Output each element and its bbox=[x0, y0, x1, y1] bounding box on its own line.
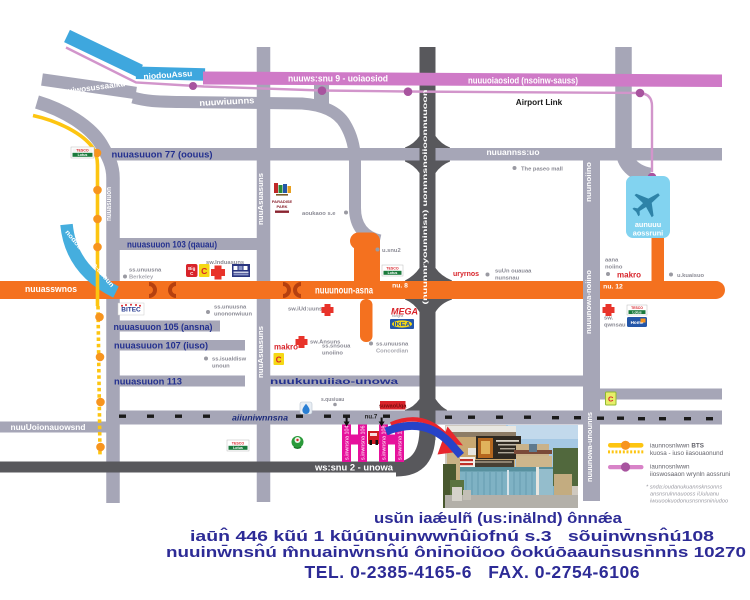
svg-text:Concordian: Concordian bbox=[376, 349, 409, 355]
svg-text:iaūn̂ 446 kũú 1 kũúūnuin: iaūn̂ 446 kũú 1 kũúūnuinwwn̄ûiofn… bbox=[190, 526, 714, 545]
svg-text:nuuasuuon 105 (ansna): nuuasuuon 105 (ansna) bbox=[114, 322, 213, 332]
svg-text:iaunnosnlwwn BTS: iaunnosnlwwn BTS bbox=[650, 443, 704, 450]
svg-text:s.inwnsna 104: s.inwnsna 104 bbox=[345, 426, 351, 460]
svg-text:nuuasuuon 113: nuuasuuon 113 bbox=[114, 376, 182, 386]
svg-text:ss.unuusna: ss.unuusna bbox=[214, 305, 247, 311]
svg-text:nuuAsuasuns: nuuAsuasuns bbox=[256, 173, 265, 225]
svg-text:nuukunuiiao-unowa: nuukunuiiao-unowa bbox=[270, 377, 399, 386]
svg-text:qwnsau: qwnsau bbox=[604, 323, 626, 329]
svg-text:aana: aana bbox=[605, 258, 619, 264]
svg-text:suUn ouauaa: suUn ouauaa bbox=[495, 269, 532, 275]
svg-text:BITEC: BITEC bbox=[121, 307, 141, 314]
svg-text:Airport Link: Airport Link bbox=[516, 98, 563, 107]
svg-text:nu. 8: nu. 8 bbox=[392, 283, 408, 290]
svg-text:C: C bbox=[608, 395, 614, 404]
svg-text:nu.7: nu.7 bbox=[365, 414, 378, 421]
svg-text:aiiuniwnnsna: aiiuniwnnsna bbox=[232, 414, 288, 423]
svg-text:nuuunoun-asna: nuuunoun-asna bbox=[315, 286, 373, 297]
svg-text:nuuunowa-unounns: nuuunowa-unounns bbox=[585, 412, 594, 482]
svg-text:nuuuoiaosiod (nsoinw-sauss): nuuuoiaosiod (nsoinw-sauss) bbox=[468, 76, 578, 86]
svg-text:nuuws:snu 9 - uoiaosiod: nuuws:snu 9 - uoiaosiod bbox=[288, 74, 388, 84]
svg-text:iwuuookuodonusnsnnsniniudoo: iwuuookuodonusnsnnsniniudoo bbox=[650, 499, 728, 505]
svg-text:ss.isualdisw: ss.isualdisw bbox=[212, 357, 247, 363]
svg-text:makro: makro bbox=[617, 271, 641, 280]
svg-text:Berkeley: Berkeley bbox=[129, 275, 154, 281]
svg-text:nuuasuuon 107 (iuso): nuuasuuon 107 (iuso) bbox=[114, 340, 208, 350]
svg-text:sw.iUd:uuns: sw.iUd:uuns bbox=[288, 307, 322, 313]
svg-text:s.inwnsna 106: s.inwnsna 106 bbox=[361, 426, 367, 460]
svg-text:nuuasuuon: nuuasuuon bbox=[104, 187, 113, 221]
svg-text:aoukaoo s.e: aoukaoo s.e bbox=[302, 211, 336, 217]
svg-text:kuosa - iuso iiasouaonund: kuosa - iuso iiasouaonund bbox=[650, 450, 724, 457]
svg-text:nu. 12: nu. 12 bbox=[603, 284, 623, 291]
svg-text:Lotus: Lotus bbox=[388, 271, 398, 275]
svg-text:ss.unuusna: ss.unuusna bbox=[376, 342, 409, 348]
svg-text:The paseo mall: The paseo mall bbox=[521, 167, 563, 173]
svg-text:nuuasuuon 103 (qauau): nuuasuuon 103 (qauau) bbox=[127, 239, 217, 249]
svg-text:Lotus: Lotus bbox=[233, 446, 243, 450]
svg-text:ss.snsouа: ss.snsouа bbox=[322, 344, 351, 350]
svg-text:nuuannss:uo: nuuannss:uo bbox=[487, 147, 540, 157]
svg-text:u.kuaisuo: u.kuaisuo bbox=[677, 273, 705, 279]
svg-text:ansnsrulnnauooss iUuluanu: ansnsrulnnauooss iUuluanu bbox=[650, 492, 719, 498]
svg-text:TESCO: TESCO bbox=[232, 442, 245, 446]
svg-text:aossruni: aossruni bbox=[633, 229, 663, 238]
svg-text:ss.unuusna: ss.unuusna bbox=[129, 268, 162, 274]
svg-text:Lotus: Lotus bbox=[632, 310, 641, 314]
svg-text:C: C bbox=[276, 356, 282, 365]
svg-text:nunsnau: nunsnau bbox=[495, 276, 520, 282]
svg-text:IKEA: IKEA bbox=[394, 322, 411, 328]
svg-text:nuuunowa-noiino: nuuunowa-noiino bbox=[584, 270, 593, 334]
svg-text:TEL. 0-2385-4165-6 FAX. 0-27: TEL. 0-2385-4165-6 FAX. 0-2754-6106 bbox=[305, 562, 640, 582]
svg-text:suwaoUqа: suwaoUqа bbox=[379, 404, 407, 410]
svg-text:ws:snu 2 - unowa: ws:snu 2 - unowa bbox=[314, 462, 394, 473]
svg-text:C: C bbox=[201, 266, 207, 276]
svg-text:TESCO: TESCO bbox=[386, 267, 399, 271]
svg-text:unononwiuun: unononwiuun bbox=[214, 312, 252, 318]
svg-text:u.snu2: u.snu2 bbox=[382, 248, 401, 254]
svg-text:bangna: bangna bbox=[392, 314, 403, 318]
svg-text:unoun: unoun bbox=[212, 364, 230, 370]
svg-text:nuunoiino: nuunoiino bbox=[584, 161, 593, 202]
svg-text:iioswosaaon wrynln aossruni: iioswosaaon wrynln aossruni bbox=[650, 471, 730, 478]
svg-text:s.qusiuau: s.qusiuau bbox=[321, 397, 344, 403]
svg-text:nuuinw̄nsn̂ú m̂nuainw̄nsn̂ú: nuuinw̄nsn̂ú m̂nuainw̄nsn̂ú ônin̄oiũ… bbox=[166, 542, 746, 561]
svg-text:TESCO: TESCO bbox=[76, 149, 89, 153]
svg-text:nuuasuuon 77 (oouus): nuuasuuon 77 (oouus) bbox=[112, 149, 213, 159]
svg-text:unoiino: unoiino bbox=[322, 351, 343, 357]
svg-text:* snda:ioudanukuannsknsonns: * snda:ioudanukuannsknsonns bbox=[646, 485, 722, 491]
svg-text:PARK: PARK bbox=[276, 204, 287, 209]
svg-text:nuuAsuasuns: nuuAsuasuns bbox=[256, 326, 265, 378]
svg-text:usŭn iaǽulñ (us:inälnd) ônnǽ: usŭn iaǽulñ (us:inälnd) ônnǽa bbox=[374, 511, 623, 527]
svg-text:iaunnosnlwwn: iaunnosnlwwn bbox=[650, 464, 690, 471]
svg-text:uryrnos: uryrnos bbox=[453, 271, 479, 278]
svg-text:Lotus: Lotus bbox=[78, 153, 88, 157]
svg-text:sw.: sw. bbox=[604, 316, 614, 322]
svg-text:nuuasswnos: nuuasswnos bbox=[25, 284, 77, 294]
svg-text:makro: makro bbox=[274, 343, 298, 352]
svg-text:(nuunnryouninisn) uonnnsnoiioo: (nuunnryouninisn) uonnnsnoiioonnuuoon bbox=[422, 90, 429, 305]
svg-text:nuuUoionauowsnd: nuuUoionauowsnd bbox=[11, 423, 86, 432]
